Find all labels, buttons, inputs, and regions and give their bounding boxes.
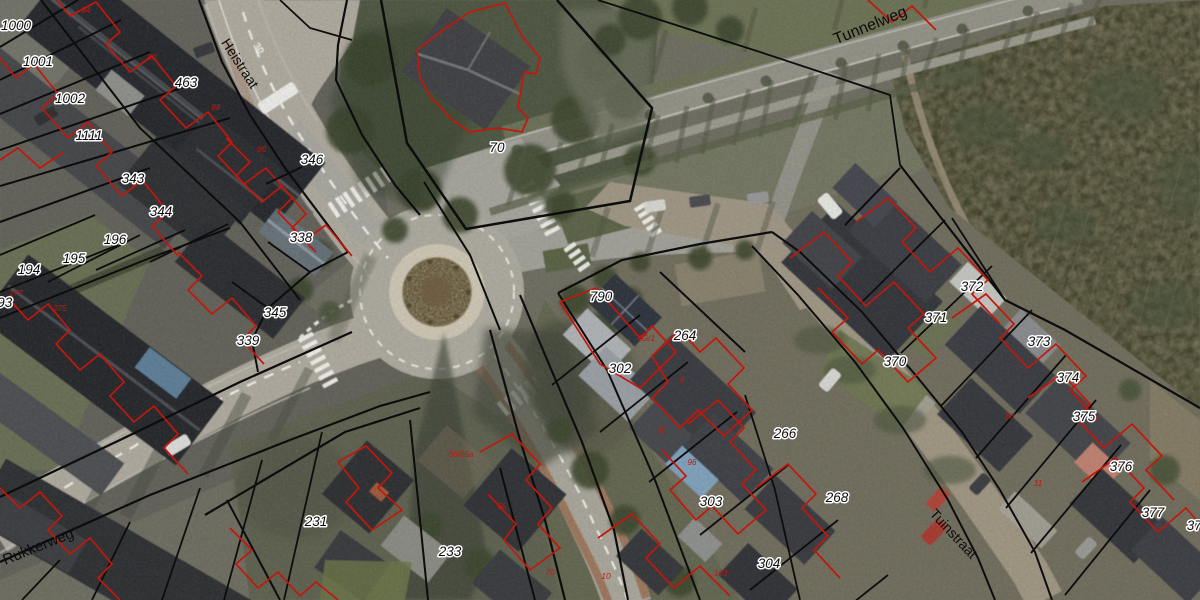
svg-text:195: 195	[63, 251, 86, 266]
svg-text:70: 70	[546, 568, 555, 577]
svg-text:376: 376	[1110, 459, 1133, 474]
svg-text:303: 303	[700, 494, 723, 509]
svg-text:1001: 1001	[23, 54, 53, 69]
svg-text:264: 264	[673, 328, 697, 343]
svg-text:304: 304	[758, 556, 781, 571]
svg-text:339: 339	[237, 333, 260, 348]
svg-text:338: 338	[290, 230, 313, 245]
svg-text:372: 372	[961, 279, 984, 294]
svg-text:68: 68	[1006, 412, 1015, 421]
svg-text:88: 88	[212, 103, 221, 112]
svg-text:373: 373	[1028, 334, 1051, 349]
svg-text:231: 231	[304, 514, 328, 529]
svg-text:790: 790	[590, 289, 613, 304]
svg-text:4G/1: 4G/1	[637, 333, 656, 343]
svg-text:92: 92	[657, 426, 666, 435]
svg-text:463: 463	[175, 75, 198, 90]
svg-text:1000: 1000	[1, 18, 32, 33]
svg-text:10: 10	[601, 571, 611, 581]
svg-text:346: 346	[301, 152, 324, 167]
svg-text:196: 196	[104, 232, 127, 247]
svg-text:1111: 1111	[75, 128, 102, 143]
svg-text:378: 378	[1187, 518, 1200, 533]
svg-text:101: 101	[714, 568, 728, 578]
svg-text:90: 90	[148, 53, 157, 62]
svg-text:302: 302	[609, 361, 632, 376]
svg-text:268: 268	[825, 490, 849, 505]
svg-text:343: 343	[122, 171, 145, 186]
svg-text:277: 277	[8, 289, 23, 298]
svg-text:94: 94	[82, 6, 91, 15]
svg-text:66/66a: 66/66a	[449, 450, 474, 459]
svg-text:371: 371	[925, 310, 948, 325]
svg-text:370: 370	[884, 354, 907, 369]
svg-text:70: 70	[489, 140, 505, 155]
svg-text:66: 66	[498, 502, 507, 511]
svg-text:375: 375	[1073, 409, 1096, 424]
svg-text:377: 377	[1142, 505, 1165, 520]
svg-text:344: 344	[150, 204, 173, 219]
svg-text:275: 275	[52, 304, 67, 313]
svg-text:233: 233	[438, 544, 462, 559]
svg-text:96: 96	[688, 458, 697, 467]
svg-text:1002: 1002	[55, 91, 86, 106]
svg-text:374: 374	[1057, 370, 1080, 385]
svg-text:4: 4	[680, 375, 685, 384]
svg-text:266: 266	[773, 426, 797, 441]
svg-text:194: 194	[18, 262, 41, 277]
svg-text:86: 86	[258, 145, 267, 154]
svg-text:345: 345	[264, 305, 287, 320]
svg-text:11: 11	[1034, 479, 1042, 488]
